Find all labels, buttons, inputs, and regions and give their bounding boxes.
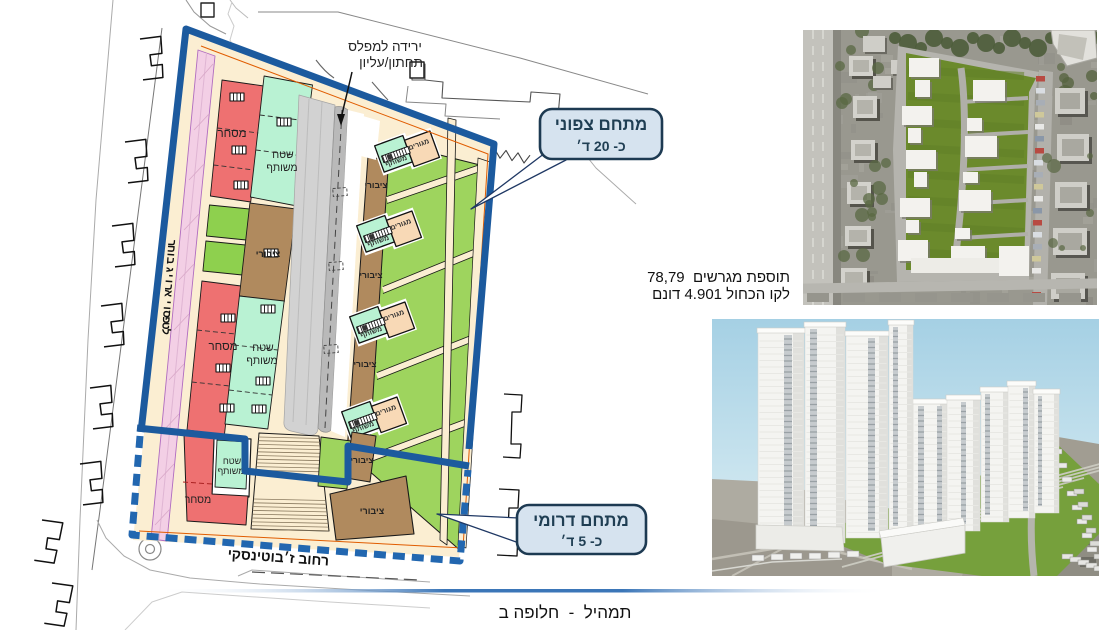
svg-text:ב: ב — [164, 257, 176, 265]
svg-text:ציבורי: ציבורי — [360, 506, 385, 516]
svg-text:מסחר: מסחר — [185, 494, 212, 506]
svg-text:ציבורי: ציבורי — [359, 270, 382, 280]
svg-text:ירידה למפלס: ירידה למפלס — [348, 39, 422, 54]
svg-text:משותף: משותף — [266, 162, 297, 174]
svg-text:ציבורי: ציבורי — [364, 180, 387, 190]
svg-text:ל: ל — [159, 328, 172, 335]
svg-text:מתחם דרומי: מתחם דרומי — [533, 511, 629, 530]
svg-text:שטח: שטח — [223, 456, 242, 466]
svg-text:ג: ג — [163, 267, 175, 273]
svg-text:משותף: משותף — [246, 355, 277, 367]
svg-text:שטח: שטח — [252, 342, 274, 354]
svg-text:ציבורי: ציבורי — [353, 359, 376, 369]
svg-text:שטח: שטח — [272, 149, 294, 161]
svg-text:מתחם צפוני: מתחם צפוני — [555, 115, 647, 134]
svg-text:ציבורי: ציבורי — [256, 249, 281, 259]
svg-text:א: א — [162, 289, 175, 298]
svg-text:ציבורי: ציבורי — [350, 455, 373, 465]
svg-text:מסחר: מסחר — [208, 341, 237, 353]
svg-text:מסחר: מסחר — [217, 128, 246, 140]
svg-text:משותף: משותף — [218, 466, 245, 476]
svg-text:תחתון/עליון: תחתון/עליון — [359, 55, 423, 70]
